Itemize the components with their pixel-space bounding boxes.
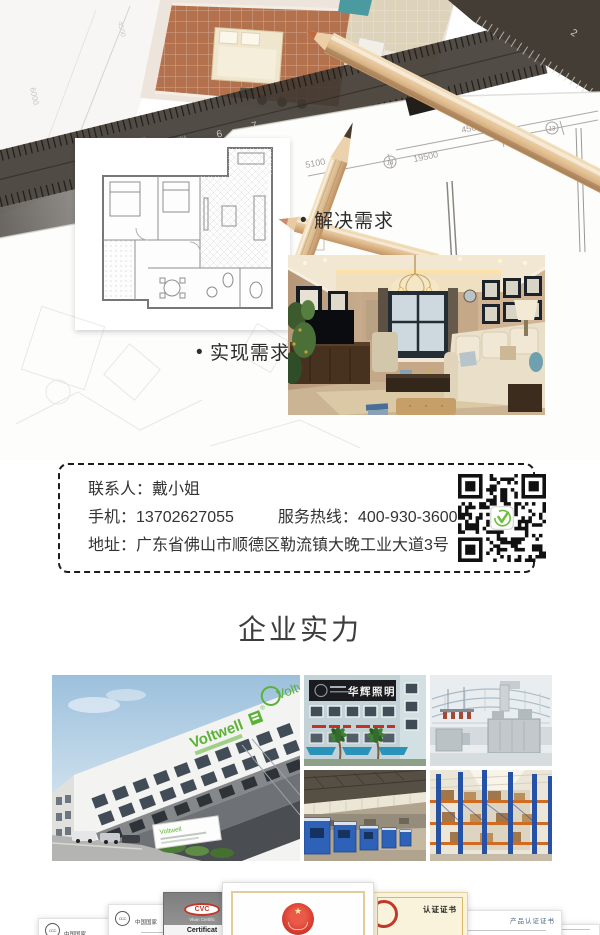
certificate-national [222, 882, 374, 935]
hero-collage: 6000 4500 [0, 0, 600, 460]
certificate-cn-book: 认证证书 [372, 892, 468, 935]
bullet-marker: • [196, 342, 203, 363]
ccc-logo-icon: CCC [115, 911, 130, 926]
photo-voltwell-hq: Voltwell ® Voltwell [52, 675, 300, 861]
red-seal-icon [377, 900, 398, 928]
cert-product-title: 产品认证证书 [459, 915, 555, 925]
photo-huahui-building: 华辉照明 [304, 675, 426, 766]
address-label: 地址： [88, 537, 136, 554]
national-emblem-icon [282, 903, 314, 935]
hotline-value: 400-930-3600 [358, 509, 458, 526]
contact-line-name: 联系人：戴小姐 [88, 476, 458, 504]
contact-name-label: 联系人： [88, 481, 152, 498]
photo-coating-workshop [430, 675, 552, 766]
certificate-product: 产品认证证书 [452, 910, 562, 935]
photo-warehouse-racks [430, 770, 552, 861]
hero-bullet-realize: 实现需求 [210, 342, 290, 364]
hero-bullet-solve: 解决需求 [314, 210, 394, 232]
contact-line-phone: 手机：13702627055服务热线：400-930-3600 [88, 504, 458, 532]
contact-line-address: 地址：广东省佛山市顺德区勒流镇大晚工业大道3号 [88, 532, 458, 560]
contact-name-value: 戴小姐 [152, 481, 200, 498]
strength-gallery: Voltwell ® Voltwell [52, 675, 552, 861]
page: 6000 4500 [0, 0, 600, 935]
axis-bubble-label: 14 [387, 161, 394, 167]
contact-lines: 联系人：戴小姐 手机：13702627055服务热线：400-930-3600 … [88, 476, 458, 560]
hotline-label: 服务热线： [278, 509, 358, 526]
certificates-strip: CCC 中国国家 CCC 中国国家 CVC Vkan Certific Cert… [0, 876, 600, 935]
contact-box: 联系人：戴小姐 手机：13702627055服务热线：400-930-3600 … [58, 463, 535, 573]
axis-bubble-label: 13 [549, 127, 556, 133]
huahui-sign-text: 华辉照明 [348, 685, 396, 698]
cvc-logo: CVC [184, 903, 220, 916]
phone-label: 手机： [88, 509, 136, 526]
address-value: 广东省佛山市顺德区勒流镇大晚工业大道3号 [136, 537, 449, 554]
photo-machine-workshop [304, 770, 426, 861]
phone-value: 13702627055 [136, 509, 234, 526]
qr-code [458, 474, 546, 562]
cert-title: 中国国家 [135, 920, 157, 926]
ccc-logo-icon: CCC [45, 923, 60, 935]
cert-cn-title: 认证证书 [423, 904, 457, 915]
qr-center-logo [490, 507, 513, 530]
floorplan-card [75, 138, 290, 330]
bullet-marker: • [300, 210, 307, 231]
living-room-photo [282, 255, 545, 415]
section-title-strength: 企业实力 [0, 608, 600, 648]
